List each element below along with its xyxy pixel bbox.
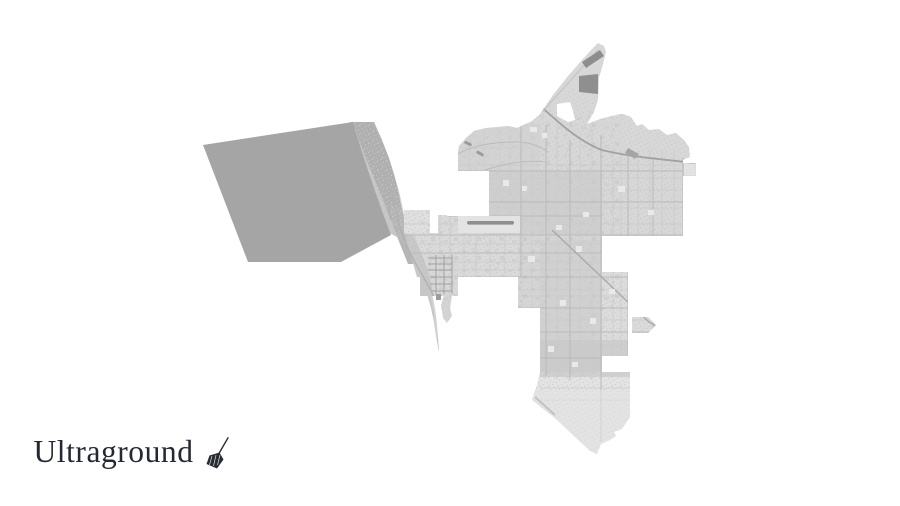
svg-text:Ultraground: Ultraground — [34, 434, 194, 469]
